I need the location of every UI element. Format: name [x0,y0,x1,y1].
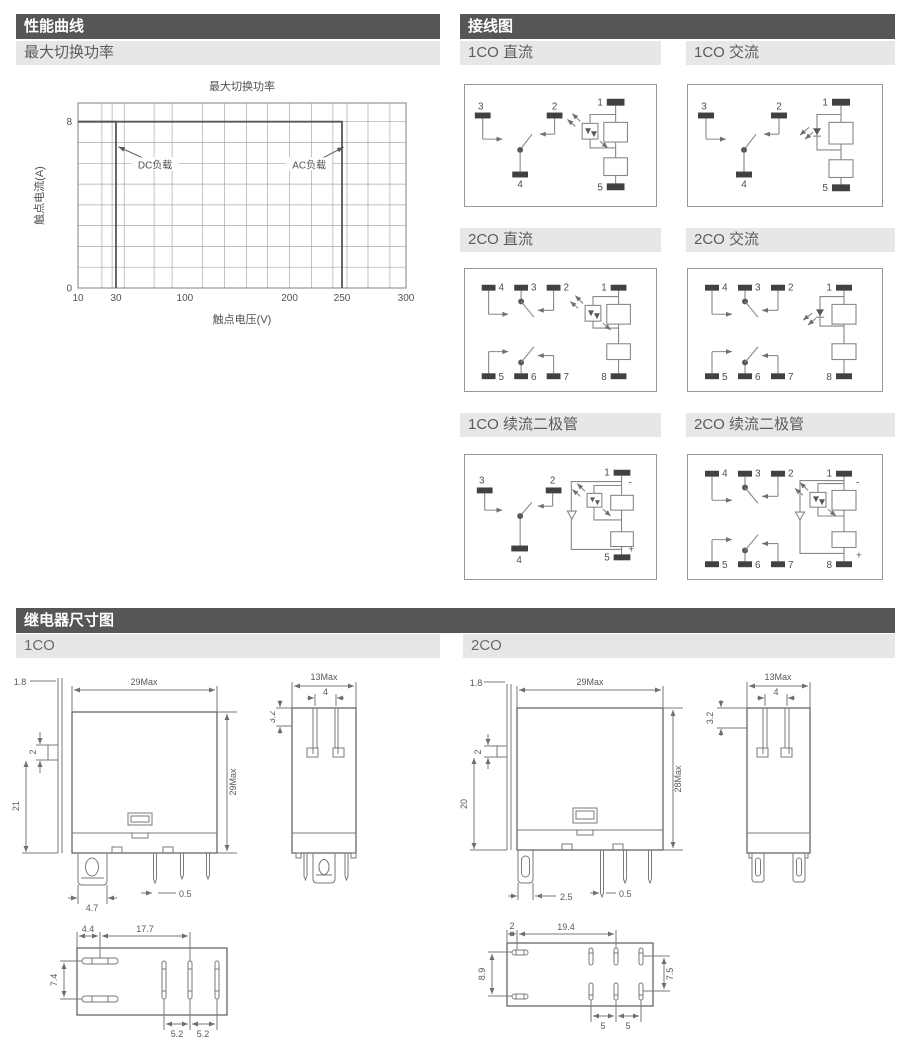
dim-label: 5.2 [171,1029,184,1039]
terminal-label: 2 [563,283,568,294]
wiring-header-label: 接线图 [468,18,513,35]
svg-text:DC负载: DC负载 [138,158,172,171]
terminal-label: 8 [826,560,832,571]
dim-label: 17.7 [136,924,154,934]
terminal-label: 7 [788,560,794,571]
coil-circuit: 1 - 5 + [567,468,634,564]
terminal-label: 3 [755,283,761,294]
terminal-label: 6 [755,372,761,383]
polarity-label: - [628,478,631,489]
dim-label: 4.4 [82,924,95,934]
dim-label: 7.4 [49,974,59,987]
terminal-label: 2 [552,102,557,113]
dim-label: 2 [28,749,38,754]
svg-text:触点电压(V): 触点电压(V) [213,312,272,326]
performance-subheader: 最大切换功率 [16,41,440,65]
wiring-diagram-1co-dc: 3 2 4 1 [464,84,657,207]
dim-label: 5 [600,1021,605,1031]
coil-circuit: 1 8 [570,283,630,384]
dim-label: 29Max [130,677,158,687]
dim-1co-bottom-view: 4.4 17.7 7.4 5.2 5.2 [30,922,290,1045]
wiring-subheader-label: 2CO 交流 [694,231,759,248]
terminal-label: 5 [822,183,828,194]
dim-label: 1.8 [14,677,27,687]
terminal-label: 3 [531,283,537,294]
dim-2co-front-view: 1.8 29Max 2 20 28Max 2.5 0.5 [450,664,700,914]
svg-text:30: 30 [110,293,122,304]
led-indicator [582,123,598,139]
coil-circuit: 1 8 [803,283,856,383]
terminal-label: 3 [701,102,707,113]
terminal-label: 2 [788,469,794,480]
svg-text:100: 100 [177,293,194,304]
performance-subheader-label: 最大切换功率 [24,44,114,61]
polarity-label: + [628,544,634,555]
terminal-label: 1 [822,98,828,109]
terminal-label: 7 [788,372,794,383]
wiring-subheader-label: 2CO 续流二极管 [694,416,804,433]
switch-circuit: 3 2 4 [475,102,563,191]
svg-text:200: 200 [281,293,298,304]
performance-header-label: 性能曲线 [24,18,84,35]
terminal-label: 5 [604,552,610,563]
max-switching-power-chart: 103010020025030008最大切换功率触点电压(V)触点电流(A)DC… [30,78,440,328]
wiring-subheader-2co-ac: 2CO 交流 [686,228,895,252]
switch-circuit: 3 2 4 [477,476,562,567]
terminal-label: 1 [597,98,602,109]
terminal-label: 4 [741,179,747,190]
terminal-label: 8 [826,372,832,383]
led-indicator [816,309,824,316]
dimensions-subheader-1co: 1CO [16,634,440,658]
dim-label: 2 [509,922,514,931]
wiring-diagram-2co-diode: 4 3 2 5 6 7 1 - [687,454,883,580]
wiring-diagram-1co-diode: 3 2 4 1 - [464,454,657,580]
dim-2co-side-view: 13Max 4 3.2 [705,664,880,914]
pcb-footprint [77,948,227,1015]
dim-label: 5.2 [197,1029,210,1039]
wiring-subheader-1co-dc: 1CO 直流 [460,41,661,65]
dim-label: 7.5 [665,968,675,981]
svg-text:最大切换功率: 最大切换功率 [209,79,275,93]
terminal-label: 4 [722,469,728,480]
svg-text:触点电流(A): 触点电流(A) [32,166,46,225]
dim-label: 2.5 [560,892,573,902]
switch-circuit: 4 3 2 5 6 7 [705,283,794,383]
terminal-pad [771,113,787,119]
terminal-label: 5 [498,372,504,383]
dim-label: 13Max [310,672,338,682]
dim-label: 21 [11,801,21,811]
terminal-label: 4 [498,283,504,294]
terminal-pad [607,183,625,190]
terminal-label: 7 [563,372,568,383]
terminal-label: 6 [531,372,537,383]
terminal-label: 1 [601,283,606,294]
terminal-pad [475,113,491,119]
coil-circuit: 1 - 8 + [795,469,862,571]
dimensions-subheader-label: 2CO [471,637,502,654]
terminal-pad [832,184,850,191]
wiring-subheader-2co-diode: 2CO 续流二极管 [686,413,895,437]
terminal-label: 2 [550,476,555,487]
terminal-label: 4 [722,283,728,294]
relay-outline [747,708,810,882]
terminal-label: 5 [597,182,603,193]
dim-label: 29Max [576,677,604,687]
terminal-pad [736,172,752,178]
coil-circuit: 1 5 [567,98,627,194]
dim-label: 3.2 [705,712,715,725]
terminal-pad [698,113,714,119]
terminal-label: 6 [755,560,761,571]
wiring-section-header: 接线图 [460,14,895,39]
relay-outline [48,678,217,885]
dim-label: 5 [625,1021,630,1031]
diode-icon [796,512,805,520]
pcb-footprint [507,943,653,1006]
wiring-subheader-1co-diode: 1CO 续流二极管 [460,413,661,437]
dim-1co-side-view: 13Max 4 3.2 [270,664,395,914]
terminal-pad [607,99,625,106]
terminal-label: 2 [776,102,782,113]
terminal-pad [547,113,563,119]
dimensions-subheader-2co: 2CO [463,634,895,658]
terminal-pad [832,99,850,106]
dimensions-subheader-label: 1CO [24,637,55,654]
switch-circuit: 4 3 2 5 6 7 [482,283,569,384]
relay-outline [292,708,356,883]
wiring-diagram-2co-dc: 4 3 2 5 6 7 1 [464,268,657,392]
dim-label: 0.5 [619,889,632,899]
wiring-subheader-label: 1CO 直流 [468,44,533,61]
terminal-label: 5 [722,560,728,571]
dim-label: 19.4 [557,922,575,932]
terminal-label: 5 [722,372,728,383]
terminal-label: 8 [601,372,607,383]
svg-text:8: 8 [66,117,72,128]
terminal-label: 1 [604,468,609,479]
relay-outline [497,684,663,897]
dim-label: 28Max [673,765,683,793]
wiring-diagram-1co-ac: 3 2 4 1 5 [687,84,883,207]
dim-label: 4 [323,687,328,697]
switch-circuit: 4 3 2 5 6 7 [705,469,794,571]
terminal-label: 3 [755,469,761,480]
svg-text:0: 0 [66,284,72,295]
terminal-pad [512,172,528,178]
switch-circuit: 3 2 4 [698,102,787,191]
dim-label: 29Max [228,768,238,796]
polarity-label: - [856,478,859,489]
dim-1co-front-view: 1.8 29Max 2 21 29Max 4.7 0.5 [0,664,250,914]
dim-label: 1.8 [470,678,483,688]
diode-icon [567,511,576,519]
svg-text:10: 10 [72,293,84,304]
coil-circuit: 1 5 [800,98,853,194]
dim-label: 4.7 [86,903,99,913]
dim-label: 4 [773,687,778,697]
dim-label: 20 [459,799,469,809]
dim-label: 3.2 [270,711,277,724]
svg-text:300: 300 [398,293,415,304]
dim-label: 2 [473,749,483,754]
wiring-subheader-label: 1CO 交流 [694,44,759,61]
terminal-label: 3 [479,476,485,487]
wiring-subheader-1co-ac: 1CO 交流 [686,41,895,65]
wiring-subheader-label: 1CO 续流二极管 [468,416,578,433]
dim-label: 8.9 [477,968,487,981]
polarity-label: + [856,550,862,561]
svg-text:250: 250 [334,293,351,304]
dimensions-section-header: 继电器尺寸图 [16,608,895,633]
terminal-label: 1 [826,469,832,480]
led-indicator [813,128,821,135]
dimensions-header-label: 继电器尺寸图 [24,612,114,629]
dim-label: 0.5 [179,889,192,899]
performance-section-header: 性能曲线 [16,14,440,39]
wiring-subheader-2co-dc: 2CO 直流 [460,228,661,252]
dim-2co-bottom-view: 2 19.4 8.9 7.5 5 5 [460,922,720,1045]
terminal-label: 2 [788,283,794,294]
dim-label: 13Max [764,672,792,682]
datasheet-page: 性能曲线 最大切换功率 103010020025030008最大切换功率触点电压… [0,0,900,1045]
led-indicator [587,493,602,507]
terminal-label: 4 [516,555,522,566]
svg-text:AC负载: AC负载 [292,158,326,171]
wiring-subheader-label: 2CO 直流 [468,231,533,248]
terminal-label: 4 [517,179,523,190]
wiring-diagram-2co-ac: 4 3 2 5 6 7 1 [687,268,883,392]
terminal-label: 3 [478,102,484,113]
terminal-label: 1 [826,283,832,294]
